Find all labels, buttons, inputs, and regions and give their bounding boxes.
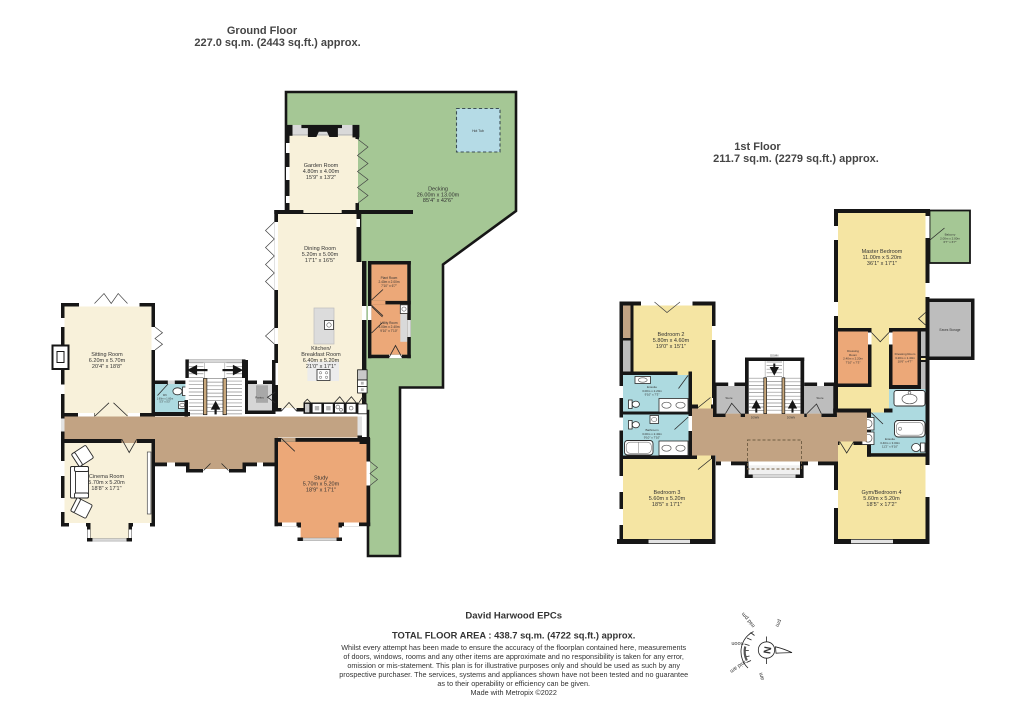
svg-text:mid am: mid am	[728, 659, 747, 674]
svg-text:7'10" x 6'7": 7'10" x 6'7"	[381, 284, 397, 288]
svg-text:5'3" x 5'3": 5'3" x 5'3"	[160, 401, 171, 404]
svg-text:211.7 sq.m. (2279 sq.ft.) appr: 211.7 sq.m. (2279 sq.ft.) approx.	[713, 153, 879, 165]
svg-text:as to their operability or eff: as to their operability or efficiency ca…	[437, 679, 590, 688]
svg-text:9'10" x 7'10": 9'10" x 7'10"	[380, 329, 397, 333]
svg-text:7'10" x 7'3": 7'10" x 7'3"	[846, 360, 861, 364]
svg-text:Eaves Storage: Eaves Storage	[940, 328, 961, 332]
svg-text:85'4" x 42'6": 85'4" x 42'6"	[423, 198, 453, 204]
svg-text:1st Floor: 1st Floor	[734, 141, 781, 153]
svg-text:David Harwood EPCs: David Harwood EPCs	[465, 611, 562, 622]
svg-text:19'0" x 15'1": 19'0" x 15'1"	[656, 344, 686, 350]
svg-text:15'9" x 13'2": 15'9" x 13'2"	[306, 175, 336, 181]
svg-text:of doors, windows, rooms and a: of doors, windows, rooms and any other i…	[343, 652, 684, 661]
svg-text:11'2" x 9'10": 11'2" x 9'10"	[882, 445, 898, 449]
svg-text:18'5" x 17'2": 18'5" x 17'2"	[866, 502, 896, 508]
svg-text:36'1" x 17'1": 36'1" x 17'1"	[867, 261, 897, 267]
svg-text:Whilst every attempt has been: Whilst every attempt has been made to en…	[341, 643, 686, 652]
svg-text:omission or mis-statement. Thi: omission or mis-statement. This plan is …	[347, 661, 680, 670]
svg-text:am: am	[758, 671, 766, 680]
svg-text:DOWN: DOWN	[770, 353, 778, 357]
svg-text:Made with Metropix ©2022: Made with Metropix ©2022	[471, 688, 557, 697]
svg-text:6'7" x 6'7": 6'7" x 6'7"	[943, 240, 956, 244]
svg-text:18'9" x 17'1": 18'9" x 17'1"	[306, 488, 336, 494]
svg-text:20'4" x 18'8": 20'4" x 18'8"	[92, 364, 122, 370]
svg-text:noon: noon	[731, 640, 743, 646]
svg-text:DOWN: DOWN	[787, 416, 795, 420]
svg-text:17'1" x 16'5": 17'1" x 16'5"	[305, 258, 335, 264]
svg-text:18'5" x 17'1": 18'5" x 17'1"	[652, 502, 682, 508]
svg-text:pm: pm	[773, 618, 782, 628]
svg-text:10'6" x 4'7": 10'6" x 4'7"	[898, 360, 913, 364]
svg-text:mid pm: mid pm	[740, 610, 756, 628]
svg-text:TOTAL FLOOR AREA : 438.7 sq.m.: TOTAL FLOOR AREA : 438.7 sq.m. (4722 sq.…	[392, 631, 635, 641]
svg-text:Pantry: Pantry	[255, 396, 264, 400]
svg-text:18'8" x 17'1": 18'8" x 17'1"	[91, 486, 121, 492]
svg-text:227.0 sq.m. (2443 sq.ft.) appr: 227.0 sq.m. (2443 sq.ft.) approx.	[194, 37, 360, 49]
svg-text:Ground Floor: Ground Floor	[227, 25, 298, 37]
svg-text:Store: Store	[725, 396, 733, 400]
svg-text:Store: Store	[816, 396, 824, 400]
svg-text:prospective purchaser. The ser: prospective purchaser. The services, sys…	[339, 670, 688, 679]
svg-text:9'10" x 7'3": 9'10" x 7'3"	[645, 393, 660, 397]
svg-text:Hot Tub: Hot Tub	[472, 129, 484, 133]
svg-text:9'10" x 7'10": 9'10" x 7'10"	[644, 436, 660, 440]
svg-text:N: N	[760, 645, 772, 654]
svg-text:DOWN: DOWN	[751, 416, 759, 420]
